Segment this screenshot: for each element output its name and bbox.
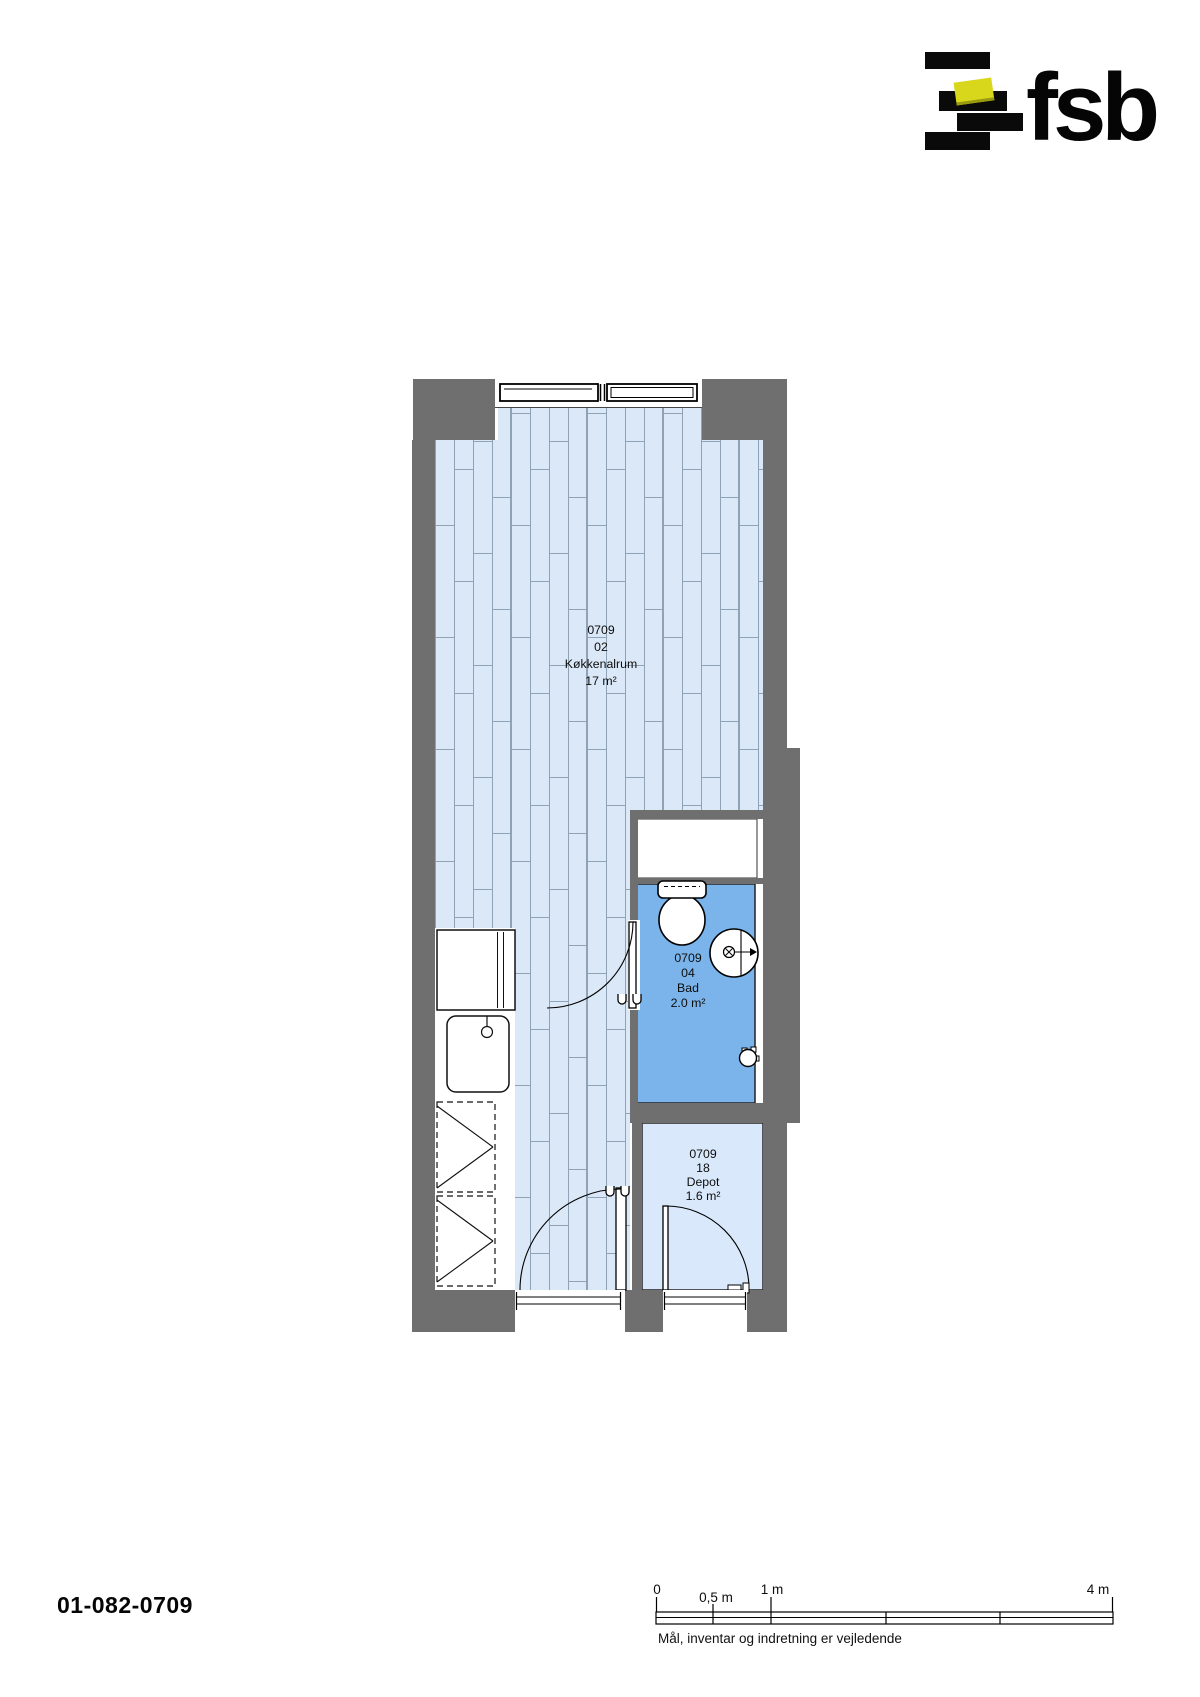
- room-unit: 0709: [587, 623, 615, 637]
- room-area: 1.6 m²: [686, 1189, 721, 1203]
- floor-plan-page: fsb: [0, 0, 1200, 1697]
- room-number: 04: [681, 966, 695, 980]
- cistern-icon: [658, 881, 706, 898]
- scale-label-four: 4 m: [1087, 1582, 1110, 1597]
- sink-unit-icon: [447, 1016, 509, 1092]
- floor-drain-icon: [740, 1047, 760, 1067]
- room-unit: 0709: [674, 951, 702, 965]
- faucet-icon: [482, 1027, 493, 1038]
- drawing-number: 01-082-0709: [57, 1592, 193, 1619]
- window-band: [495, 381, 702, 408]
- shaft-niche: [637, 819, 757, 878]
- room-unit: 0709: [689, 1147, 717, 1161]
- depot-threshold: [663, 1290, 747, 1332]
- scale-label-one: 1 m: [761, 1582, 784, 1597]
- disclaimer-text: Mål, inventar og indretning er vejledend…: [658, 1631, 902, 1646]
- room-label-depot: 0709 18 Depot 1.6 m²: [686, 1147, 721, 1203]
- entry-threshold: [515, 1290, 625, 1332]
- depot-door-leaf: [663, 1206, 668, 1290]
- room-name: Bad: [677, 981, 699, 995]
- floor-plan-svg: 0709 02 Køkkenalrum 17 m² 0709 04 Bad 2.…: [0, 0, 1200, 1697]
- scale-label-zero: 0: [653, 1582, 661, 1597]
- room-area: 17 m²: [585, 674, 616, 688]
- room-name: Køkkenalrum: [565, 657, 637, 671]
- room-name: Depot: [687, 1175, 720, 1189]
- toilet-icon: [659, 895, 705, 945]
- scale-label-half: 0,5 m: [699, 1590, 733, 1605]
- room-area: 2.0 m²: [671, 996, 706, 1010]
- room-number: 18: [696, 1161, 710, 1175]
- room-number: 02: [594, 640, 608, 654]
- window-icon: [500, 384, 598, 401]
- scale-bar-labels: 0 0,5 m 1 m 4 m: [653, 1582, 1109, 1605]
- entry-door-leaf: [616, 1188, 626, 1290]
- window-icon: [607, 384, 697, 401]
